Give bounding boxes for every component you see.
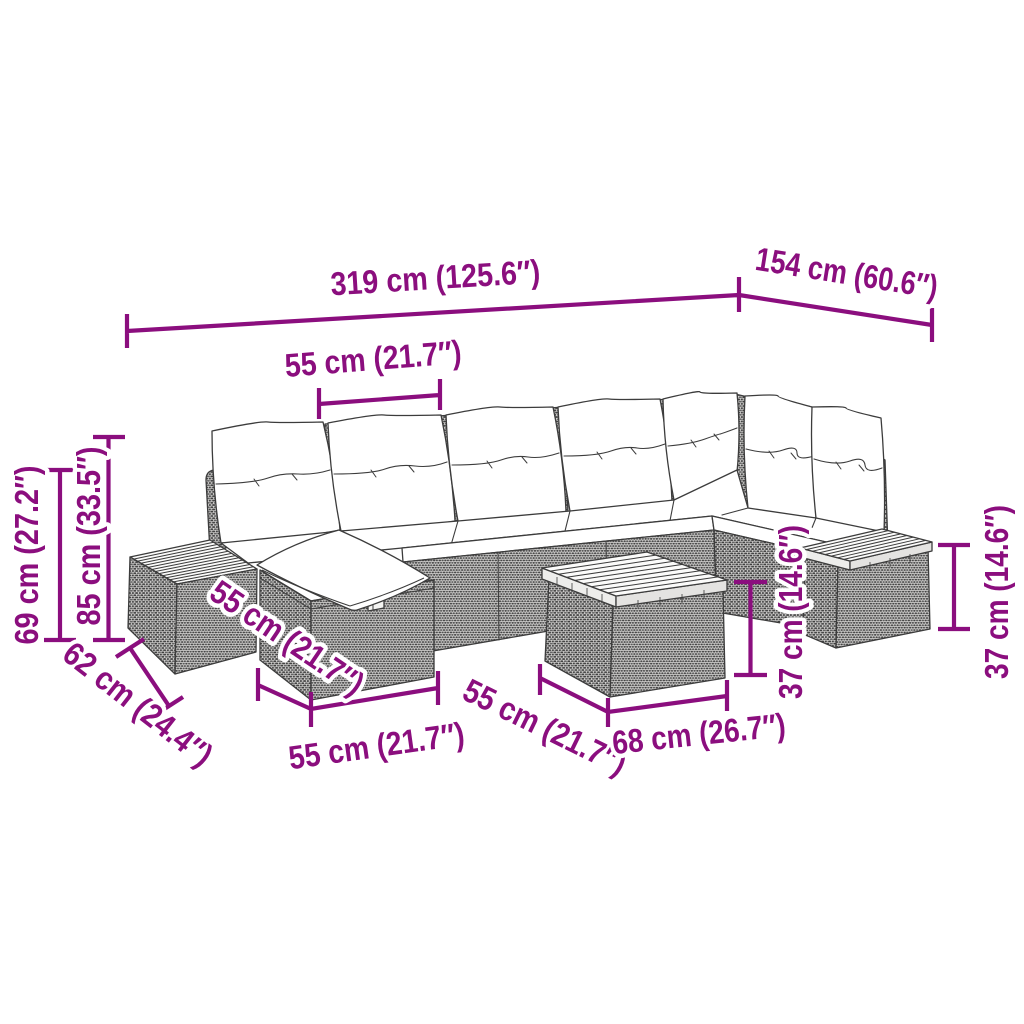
svg-text:37 cm (14.6″): 37 cm (14.6″) [978, 505, 1015, 679]
svg-text:69 cm (27.2″): 69 cm (27.2″) [8, 466, 45, 645]
svg-text:85 cm (33.5″): 85 cm (33.5″) [70, 447, 107, 626]
svg-text:37 cm (14.6″): 37 cm (14.6″) [772, 525, 809, 699]
